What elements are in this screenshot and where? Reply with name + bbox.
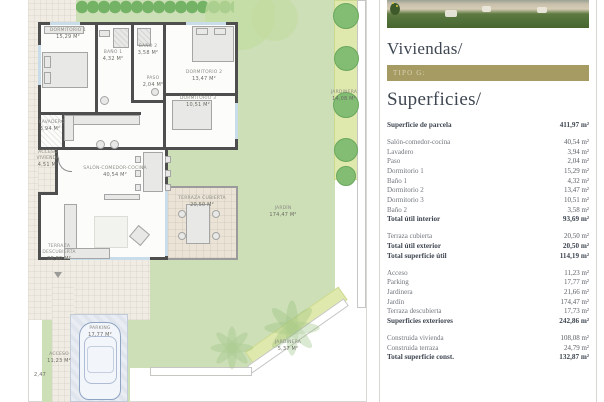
table-row: Total útil interior 93,69 m² [387, 215, 589, 225]
room-name: Dormitorio 1 [50, 28, 86, 33]
outdoor-chair [178, 210, 186, 218]
row-value: 11,23 m² [564, 269, 589, 279]
row-label: Baño 1 [387, 177, 407, 187]
row-label: Paso [387, 157, 400, 167]
room-label: Acceso 11,23 m² [42, 352, 76, 365]
bush-icon [334, 138, 358, 162]
room-area: 4,32 m² [98, 56, 128, 63]
room-area: 10,51 m² [170, 102, 226, 109]
row-value: 411,97 m² [560, 121, 589, 131]
chair [135, 184, 141, 191]
row-value: 17,73 m² [564, 307, 589, 317]
row-label: Baño 2 [387, 206, 407, 216]
row-label: Terraza cubierta [387, 232, 432, 242]
chair [165, 170, 171, 177]
room-area: 174,47 m² [258, 212, 308, 219]
row-label: Construida terraza [387, 344, 439, 354]
row-label: Superficie de parcela [387, 121, 452, 131]
room-label: Jardín 174,47 m² [258, 206, 308, 219]
garden-chair-icon [482, 6, 491, 12]
table-row: Baño 2 3,58 m² [387, 206, 589, 216]
row-value: 17,77 m² [564, 278, 589, 288]
pillow [196, 28, 208, 35]
row-value: 20,50 m² [563, 242, 589, 252]
row-value: 4,32 m² [567, 177, 589, 187]
row-label: Lavadero [387, 148, 413, 158]
garden-chair-icon [445, 10, 457, 17]
row-label: Dormitorio 2 [387, 186, 424, 196]
type-badge: TIPO G: [387, 65, 589, 81]
room-area: 2,04 m² [140, 82, 166, 89]
pillow [44, 56, 51, 68]
room-name: Parking [89, 326, 110, 331]
row-label: Dormitorio 3 [387, 196, 424, 206]
row-label: Construida vivienda [387, 334, 444, 344]
spec-panel: Viviendas/ TIPO G: Superficies/ Superfic… [379, 0, 597, 402]
room-label: Baño 1 4,32 m² [98, 50, 128, 63]
table-row: Jardín 174,47 m² [387, 298, 589, 308]
room-area: 5,37 m² [268, 346, 308, 353]
shower [113, 28, 129, 48]
toilet [151, 88, 159, 96]
row-value: 13,47 m² [564, 186, 589, 196]
flower-icon [392, 2, 394, 4]
garden-chair-icon [537, 7, 547, 13]
paving-terrace [28, 254, 150, 320]
row-value: 132,87 m² [559, 353, 589, 363]
row-value: 108,08 m² [560, 334, 589, 344]
row-label: Acceso [387, 269, 408, 279]
window [235, 103, 238, 139]
window [50, 22, 80, 25]
wall [95, 25, 98, 115]
table-row: Dormitorio 2 13,47 m² [387, 186, 589, 196]
row-label: Parking [387, 278, 409, 288]
room-label: Lavadero 3,94 m² [39, 120, 61, 133]
row-value: 10,51 m² [564, 196, 589, 206]
room-name: Acceso [49, 352, 69, 357]
row-label: Jardinera [387, 288, 413, 298]
row-value: 24,79 m² [564, 344, 589, 354]
room-area: 13,47 m² [176, 76, 232, 83]
room-label: Paso 2,04 m² [140, 76, 166, 89]
entrance-arrow-icon [54, 272, 62, 278]
room-area: 3,58 m² [133, 50, 163, 57]
boundary-wall-right [357, 0, 366, 308]
room-label: Jardinera 14,08 m² [330, 90, 358, 103]
row-label: Terraza descubierta [387, 307, 442, 317]
row-label: Superficies exteriores [387, 317, 453, 327]
table-row: Parking 17,77 m² [387, 278, 589, 288]
row-label: Salón-comedor-cocina [387, 138, 450, 148]
room-name: Dormitorio 3 [180, 96, 216, 101]
wall [131, 100, 166, 103]
bush-icon [333, 3, 359, 29]
table-row: Superficie de parcela 411,97 m² [387, 121, 589, 131]
room-name: Salón-comedor-cocina [83, 166, 146, 171]
brochure-page: Dormitorio 1 15,29 m² Baño 1 4,32 m² Bañ… [0, 0, 604, 402]
row-value: 3,94 m² [567, 148, 589, 158]
room-name: Baño 2 [139, 44, 158, 49]
outdoor-chair [212, 210, 220, 218]
room-name: Terraza descubierta [42, 244, 75, 255]
sliding-door [165, 190, 168, 256]
kitchen-appliance [64, 115, 74, 141]
subsection-title: Superficies/ [387, 89, 589, 111]
pillow [44, 72, 51, 84]
room-name: Paso [147, 76, 160, 81]
house-render-photo [387, 0, 589, 28]
row-label: Jardín [387, 298, 404, 308]
room-label: Baño 2 3,58 m² [133, 44, 163, 57]
flower-icon [396, 5, 398, 7]
row-value: 15,29 m² [564, 167, 589, 177]
room-label: Salón-comedor-cocina 40,54 m² [82, 166, 148, 179]
room-label: Parking 17,77 m² [78, 326, 122, 339]
row-label: Total útil interior [387, 215, 440, 225]
room-label: Terraza cubierta 20,50 m² [174, 196, 230, 209]
row-value: 21,66 m² [564, 288, 589, 298]
room-name: Jardín [275, 206, 292, 211]
room-name: Acceso vivienda [36, 150, 59, 161]
row-label: Total superficie útil [387, 252, 447, 262]
room-label: Dormitorio 1 15,29 m² [44, 28, 92, 41]
window [38, 45, 41, 85]
table-row: Construida vivienda 108,08 m² [387, 334, 589, 344]
room-area: 3,94 m² [39, 126, 61, 133]
table-row: Total útil exterior 20,50 m² [387, 242, 589, 252]
room-label: 2,47 [28, 372, 52, 379]
stool [96, 140, 105, 149]
table-row: Jardinera 21,66 m² [387, 288, 589, 298]
room-label: Terraza descubierta 28,80 m² [40, 244, 78, 263]
outdoor-chair [178, 232, 186, 240]
table-row: Total superficie const. 132,87 m² [387, 353, 589, 363]
table-row: Dormitorio 1 15,29 m² [387, 167, 589, 177]
wall [131, 25, 134, 103]
room-label: Dormitorio 3 10,51 m² [170, 96, 226, 109]
chair [165, 184, 171, 191]
row-value: 20,50 m² [564, 232, 589, 242]
paving-top-corner [28, 0, 76, 22]
table-row: Salón-comedor-cocina 40,54 m² [387, 138, 589, 148]
room-area: 17,77 m² [78, 332, 122, 339]
chair [135, 156, 141, 163]
kitchen-counter [64, 115, 140, 125]
table-row: Terraza descubierta 17,73 m² [387, 307, 589, 317]
room-area: 14,08 m² [330, 96, 358, 103]
table-row: Lavadero 3,94 m² [387, 148, 589, 158]
section-title: Viviendas/ [387, 39, 589, 59]
rug [94, 216, 128, 248]
window [186, 22, 226, 25]
toilet [100, 96, 109, 105]
car-roof [87, 346, 114, 373]
chair [165, 156, 171, 163]
table-row: Dormitorio 3 10,51 m² [387, 196, 589, 206]
table-row: Paso 2,04 m² [387, 157, 589, 167]
row-value: 3,58 m² [567, 206, 589, 216]
row-label: Total útil exterior [387, 242, 441, 252]
table-row: Baño 1 4,32 m² [387, 177, 589, 187]
room-name: Lavadero [39, 120, 65, 125]
outdoor-table [186, 204, 210, 244]
plant-icon [390, 3, 400, 15]
room-name: Dormitorio 2 [186, 70, 222, 75]
room-name: Jardinera [275, 340, 301, 345]
pillow [214, 28, 226, 35]
palm-tree-icon [196, 312, 268, 384]
tv-unit [104, 194, 140, 200]
room-area: 15,29 m² [44, 34, 92, 41]
surfaces-table: Superficie de parcela 411,97 m² Salón-co… [387, 121, 589, 363]
row-value: 40,54 m² [564, 138, 589, 148]
table-row: Total superficie útil 114,19 m² [387, 252, 589, 262]
room-area: 11,23 m² [42, 358, 76, 365]
row-value: 114,19 m² [560, 252, 589, 262]
row-label: Total superficie const. [387, 353, 454, 363]
room-label: Dormitorio 2 13,47 m² [176, 70, 232, 83]
bush-icon [336, 166, 356, 186]
row-value: 242,86 m² [559, 317, 589, 327]
row-value: 2,04 m² [567, 157, 589, 167]
outdoor-chair [212, 232, 220, 240]
stool [110, 140, 119, 149]
room-name: Baño 1 [104, 50, 123, 55]
bush-icon [334, 46, 359, 71]
room-label: Acceso vivienda 4,51 m² [36, 150, 60, 169]
sink [99, 30, 110, 37]
table-row: Terraza cubierta 20,50 m² [387, 232, 589, 242]
room-area: 40,54 m² [82, 172, 148, 179]
room-area: 4,51 m² [36, 162, 60, 169]
room-name: Jardinera [331, 90, 357, 95]
room-area: 20,50 m² [174, 202, 230, 209]
room-label: Jardinera 5,37 m² [268, 340, 308, 353]
room-area: 28,80 m² [40, 256, 78, 263]
room-area: 2,47 [28, 372, 52, 379]
floor-plan: Dormitorio 1 15,29 m² Baño 1 4,32 m² Bañ… [0, 0, 379, 402]
room-name: Terraza cubierta [178, 196, 226, 201]
row-label: Dormitorio 1 [387, 167, 424, 177]
row-value: 93,69 m² [563, 215, 589, 225]
table-row: Acceso 11,23 m² [387, 269, 589, 279]
table-row: Superficies exteriores 242,86 m² [387, 317, 589, 327]
row-value: 174,47 m² [560, 298, 589, 308]
table-row: Construida terraza 24,79 m² [387, 344, 589, 354]
